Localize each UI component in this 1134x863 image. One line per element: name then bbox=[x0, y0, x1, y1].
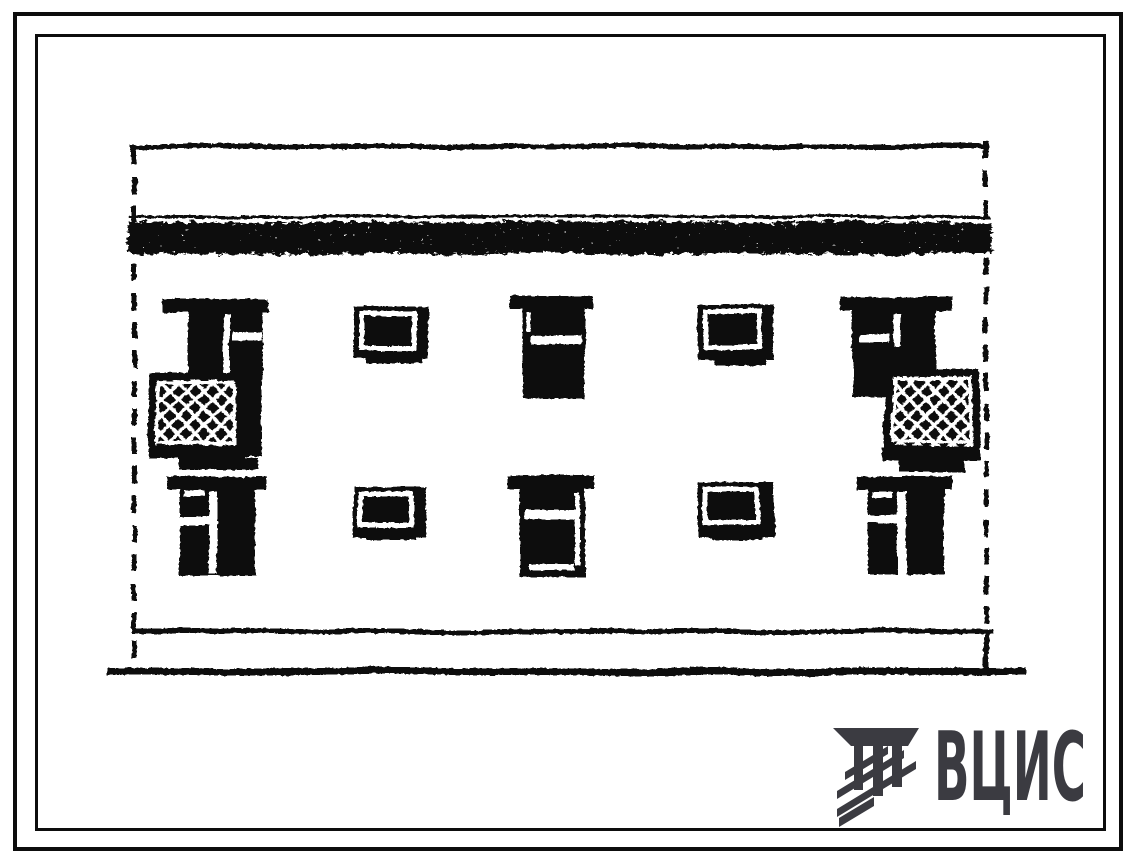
drawing-sheet: ВЦИС bbox=[0, 0, 1134, 863]
balcony-left bbox=[148, 376, 258, 470]
roof-top-line bbox=[131, 144, 989, 149]
vcis-logo-icon bbox=[833, 728, 919, 827]
window-lower-right bbox=[856, 476, 951, 575]
window-balcony-upper-right bbox=[840, 297, 980, 472]
parapet-textured-band bbox=[128, 222, 991, 254]
window-balcony-upper-left bbox=[148, 299, 268, 470]
parapet-upper-line bbox=[129, 215, 990, 218]
small-window-lower-1 bbox=[354, 487, 426, 539]
plinth-line bbox=[132, 629, 992, 634]
window-upper-middle bbox=[510, 296, 594, 399]
vcis-logo-text: ВЦИС bbox=[934, 713, 1086, 823]
plinth-right-drop bbox=[984, 629, 989, 674]
balcony-right bbox=[882, 373, 980, 472]
ground-line bbox=[107, 668, 1027, 675]
small-window-lower-2 bbox=[698, 482, 774, 540]
window-lower-middle bbox=[507, 476, 595, 577]
small-window-upper-2 bbox=[698, 304, 774, 365]
window-lower-left bbox=[166, 477, 266, 576]
small-window-upper-1 bbox=[354, 307, 428, 364]
vcis-logo: ВЦИС bbox=[832, 712, 1102, 830]
